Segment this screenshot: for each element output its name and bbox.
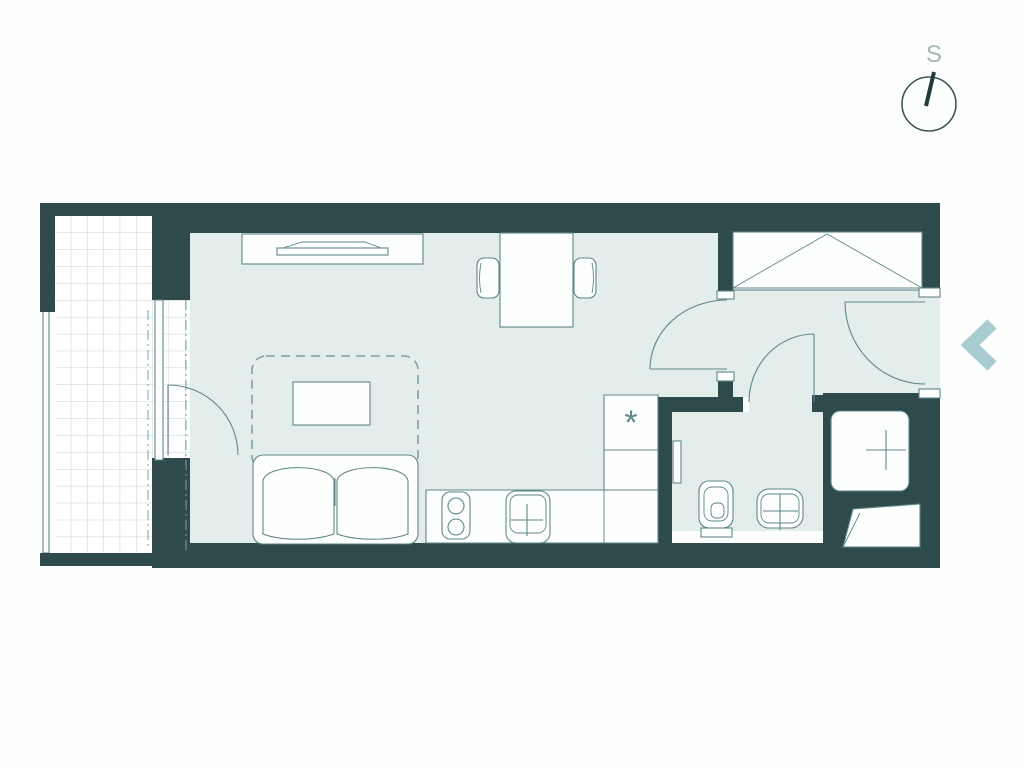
radiator bbox=[673, 441, 681, 483]
tv bbox=[277, 248, 388, 255]
entrance-opening bbox=[922, 293, 940, 393]
previous-image-button[interactable] bbox=[952, 312, 1000, 376]
cooktop bbox=[442, 492, 470, 539]
kitchen-sink bbox=[506, 491, 550, 543]
balcony-railing bbox=[43, 310, 49, 553]
chevron-left-icon bbox=[952, 312, 1000, 376]
shower bbox=[831, 411, 909, 491]
sofa-bed bbox=[253, 455, 418, 544]
bath-counter bbox=[672, 531, 823, 543]
coffee-table bbox=[293, 382, 370, 425]
wardrobe bbox=[733, 232, 922, 290]
floor-plan-page: * S bbox=[0, 0, 1024, 768]
appliance-marker: * bbox=[624, 404, 637, 442]
compass-icon: S bbox=[902, 41, 956, 131]
washbasin bbox=[757, 489, 803, 530]
chair-left bbox=[477, 258, 499, 298]
installation-shaft bbox=[843, 504, 920, 547]
chair-right bbox=[574, 258, 596, 298]
window-front bbox=[155, 300, 163, 460]
floor-plan: * S bbox=[0, 0, 1024, 768]
toilet bbox=[699, 481, 733, 537]
wardrobe-niche bbox=[733, 232, 922, 290]
dining-table bbox=[500, 233, 573, 327]
compass-label: S bbox=[926, 41, 942, 68]
